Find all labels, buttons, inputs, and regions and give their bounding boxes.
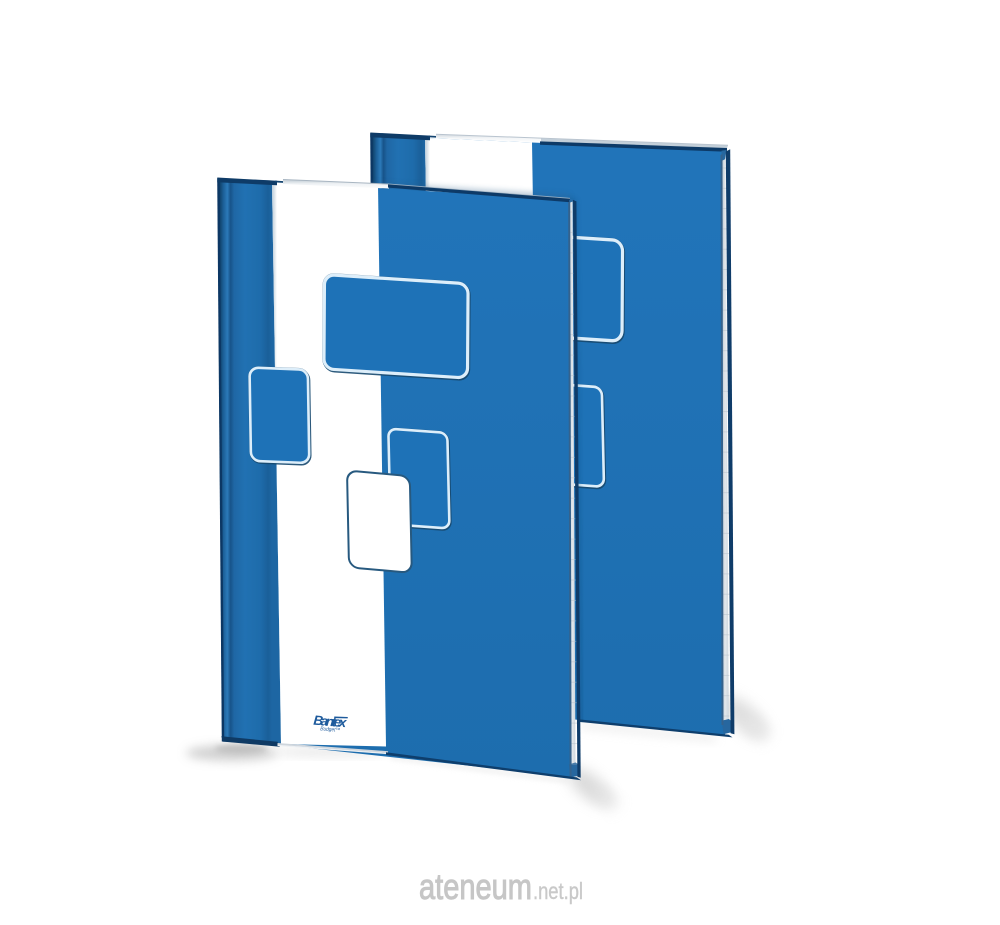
svg-text:ateneum: ateneum xyxy=(419,866,532,907)
svg-text:.net.pl: .net.pl xyxy=(533,878,583,904)
